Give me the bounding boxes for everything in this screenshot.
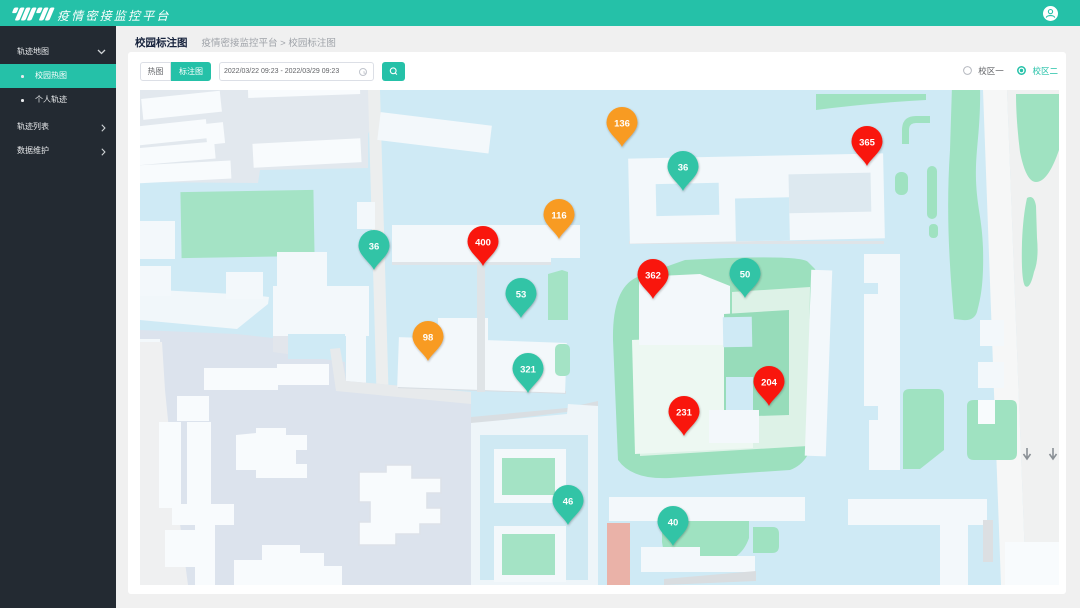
svg-text:50: 50 bbox=[740, 270, 751, 281]
svg-text:204: 204 bbox=[761, 378, 778, 389]
svg-text:53: 53 bbox=[516, 290, 527, 301]
svg-text:36: 36 bbox=[369, 242, 380, 253]
svg-text:400: 400 bbox=[475, 238, 491, 249]
svg-text:365: 365 bbox=[859, 138, 876, 149]
svg-text:136: 136 bbox=[614, 119, 630, 130]
svg-text:46: 46 bbox=[563, 497, 574, 508]
svg-text:36: 36 bbox=[678, 163, 689, 174]
svg-text:231: 231 bbox=[676, 408, 693, 419]
svg-text:98: 98 bbox=[423, 333, 434, 344]
svg-text:116: 116 bbox=[551, 211, 566, 222]
svg-text:321: 321 bbox=[520, 365, 537, 376]
svg-text:40: 40 bbox=[668, 518, 679, 529]
svg-text:362: 362 bbox=[645, 271, 661, 282]
